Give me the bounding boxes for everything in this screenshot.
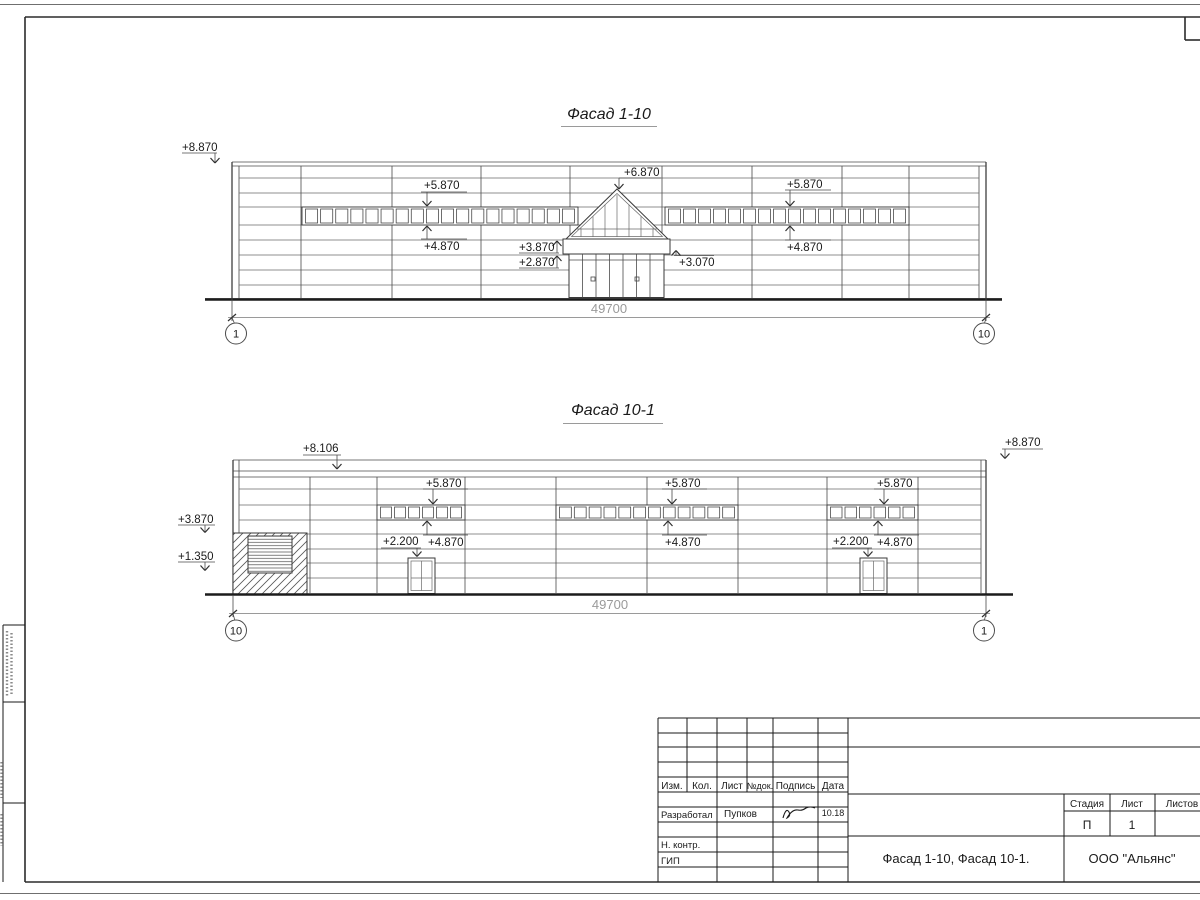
elevation-mark: +5.870 — [424, 180, 460, 192]
tb-header-data: Дата — [822, 781, 845, 792]
axis-number: 1 — [233, 329, 239, 341]
elevation-mark: +8.106 — [303, 443, 339, 455]
tb-razrabotal-name: Пупков — [724, 809, 757, 820]
axis-number: 10 — [978, 329, 990, 341]
tb-list-value: 1 — [1129, 818, 1136, 832]
tb-listov-label: Листов — [1166, 799, 1199, 810]
elevation-mark: +8.870 — [182, 142, 218, 154]
dimension-value: 49700 — [591, 301, 627, 316]
tb-razrabotal-date: 10.18 — [822, 808, 845, 818]
dimension-value: 49700 — [592, 597, 628, 612]
tb-row-razrabotal: Разработал — [661, 810, 713, 821]
drawing-sheet: Фасад 1-10 +8.870 +5.870 +4.870 +6.870 +… — [0, 0, 1200, 900]
elevation-mark: +5.870 — [877, 478, 913, 490]
elevation-mark: +4.870 — [428, 537, 464, 549]
elevation-mark: +2.870 — [519, 257, 555, 269]
elevation-mark: +5.870 — [787, 179, 823, 191]
tb-doc-title: Фасад 1-10, Фасад 10-1. — [883, 851, 1030, 866]
elevation-mark: +1.350 — [178, 551, 214, 563]
tb-header-izm: Изм. — [661, 781, 682, 792]
elevation-mark: +3.070 — [679, 257, 715, 269]
tb-row-nkontr: Н. контр. — [661, 840, 700, 851]
facade-10-1-labels: Фасад 10-1 +8.106 +8.870 +3.870 +1.350 +… — [178, 402, 1041, 641]
tb-org-name: ООО "Альянс" — [1089, 851, 1176, 866]
tb-stadiya-value: П — [1083, 818, 1092, 832]
facade-drawing-svg: Фасад 1-10 +8.870 +5.870 +4.870 +6.870 +… — [0, 0, 1200, 900]
elevation-mark: +4.870 — [877, 537, 913, 549]
tb-header-kol: Кол. — [692, 781, 712, 792]
axis-number: 10 — [230, 626, 242, 638]
elevation-mark: +2.200 — [833, 536, 869, 548]
tb-header-podpis: Подпись — [776, 781, 816, 792]
tb-row-gip: ГИП — [661, 856, 680, 867]
elevation-mark: +4.870 — [665, 537, 701, 549]
elevation-mark: +3.870 — [178, 514, 214, 526]
facade-1-10-title: Фасад 1-10 — [567, 106, 651, 123]
elevation-mark: +2.200 — [383, 536, 419, 548]
tb-header-list: Лист — [721, 781, 743, 792]
elevation-mark: +5.870 — [426, 478, 462, 490]
elevation-mark: +8.870 — [1005, 437, 1041, 449]
tb-stadiya-label: Стадия — [1070, 799, 1104, 810]
elevation-mark: +4.870 — [787, 242, 823, 254]
elevation-mark: +4.870 — [424, 241, 460, 253]
facade-10-1-title: Фасад 10-1 — [571, 402, 655, 419]
tb-list-label: Лист — [1121, 799, 1143, 810]
facade-1-10-geometry — [205, 127, 1002, 324]
elevation-mark: +3.870 — [519, 242, 555, 254]
signature-scribble — [783, 807, 815, 818]
axis-number: 1 — [981, 626, 987, 638]
elevation-mark: +5.870 — [665, 478, 701, 490]
tb-header-ndok: №док. — [747, 781, 773, 791]
elevation-mark: +6.870 — [624, 167, 660, 179]
